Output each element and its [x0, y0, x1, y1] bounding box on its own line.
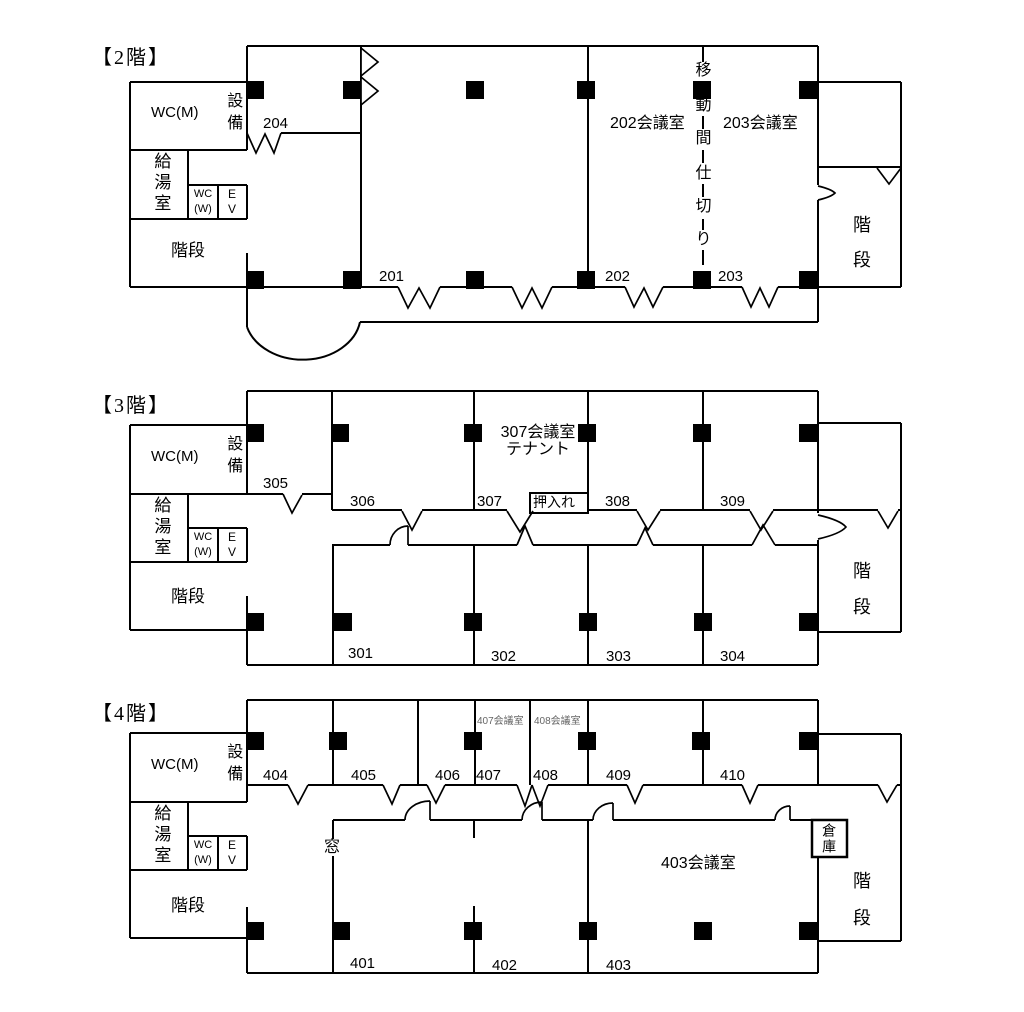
floor2-annex-stairs-char2: 段	[852, 251, 872, 270]
ev-line2: V	[217, 202, 247, 217]
floor4-columns	[246, 732, 817, 940]
window-label: 窓	[323, 839, 341, 856]
wc-w-line1: WC	[188, 838, 218, 853]
room-label-meeting403: 403会議室	[661, 855, 736, 872]
floor4-equipment-label: 設備	[224, 743, 241, 787]
ev-line2: V	[217, 545, 247, 560]
partition-char-6: り	[695, 231, 712, 248]
partition-char-1: 移	[695, 62, 712, 79]
door-label-304: 304	[720, 649, 745, 665]
floor4-annex-stairs-char1: 階	[852, 872, 872, 891]
room-label-meeting408: 408会議室	[534, 717, 581, 728]
room-label-meeting407: 407会議室	[477, 717, 524, 728]
ev-line2: V	[217, 853, 247, 868]
floor2-annex-stairs-char1: 階	[852, 216, 872, 235]
floor4-walls	[130, 700, 901, 973]
floor4-plan	[130, 700, 901, 973]
floor3-annex-stairs-char1: 階	[852, 562, 872, 581]
floor3-wc-m-label: WC(M)	[151, 449, 198, 465]
door-label-306: 306	[350, 494, 375, 510]
partition-char-3: 間	[695, 130, 712, 147]
floor2-ev-label: EV	[217, 187, 247, 217]
meeting307-line1: 307会議室	[494, 424, 582, 441]
door-label-309: 309	[720, 494, 745, 510]
floor2-kitchen-label: 給湯室	[151, 152, 169, 215]
floor4-ev-label: EV	[217, 838, 247, 868]
floor3-door-symbols	[283, 494, 898, 545]
door-label-408: 408	[533, 768, 558, 784]
wc-w-line1: WC	[188, 187, 218, 202]
door-label-409: 409	[606, 768, 631, 784]
meeting307-line2: テナント	[494, 441, 582, 458]
door-label-410: 410	[720, 768, 745, 784]
floor4-annex-stairs-char2: 段	[852, 909, 872, 928]
floor2-double-door-icon	[361, 48, 378, 105]
wc-w-line2: (W)	[188, 853, 218, 868]
door-label-303: 303	[606, 649, 631, 665]
storage-label: 倉庫	[821, 823, 836, 855]
ev-line1: E	[217, 530, 247, 545]
door-label-302: 302	[491, 649, 516, 665]
floor2-columns	[246, 81, 817, 289]
door-label-201: 201	[379, 269, 404, 285]
door-label-203: 203	[718, 269, 743, 285]
floor-plan-document: 【2階】 WC(M) 設備 給湯室 WC(W) EV 階段 204 201 20…	[0, 0, 1024, 1012]
partition-char-5: 切	[695, 198, 712, 215]
floor3-equipment-label: 設備	[224, 435, 241, 479]
floor2-stairs-label: 階段	[171, 242, 205, 260]
floor4-title: 【4階】	[92, 704, 170, 726]
room-label-meeting203: 203会議室	[723, 115, 798, 132]
floor3-kitchen-label: 給湯室	[151, 496, 169, 559]
wc-w-line1: WC	[188, 530, 218, 545]
floor4-kitchen-label: 給湯室	[151, 804, 169, 867]
wc-w-line2: (W)	[188, 202, 218, 217]
floor4-wc-w-label: WC(W)	[188, 838, 218, 868]
floor3-annex-stairs-char2: 段	[852, 598, 872, 617]
door-label-407: 407	[476, 768, 501, 784]
wc-w-line2: (W)	[188, 545, 218, 560]
floor3-stairs-label: 階段	[171, 588, 205, 606]
door-label-305: 305	[263, 476, 288, 492]
floor2-equipment-label: 設備	[224, 92, 241, 136]
floor2-wc-w-label: WC(W)	[188, 187, 218, 217]
partition-char-4: 仕	[695, 165, 712, 182]
door-label-403: 403	[606, 958, 631, 974]
room-label-meeting307: 307会議室テナント	[494, 424, 582, 459]
door-label-204: 204	[263, 116, 288, 132]
floor3-title: 【3階】	[92, 396, 170, 418]
floor4-stairs-label: 階段	[171, 897, 205, 915]
door-label-308: 308	[605, 494, 630, 510]
floor2-wc-m-label: WC(M)	[151, 105, 198, 121]
closet-label: 押入れ	[533, 495, 575, 510]
door-label-401: 401	[350, 956, 375, 972]
floor4-door-symbols	[288, 785, 897, 820]
door-label-405: 405	[351, 768, 376, 784]
door-label-307: 307	[477, 494, 502, 510]
ev-line1: E	[217, 187, 247, 202]
door-label-301: 301	[348, 646, 373, 662]
floor3-wc-w-label: WC(W)	[188, 530, 218, 560]
door-label-404: 404	[263, 768, 288, 784]
ev-line1: E	[217, 838, 247, 853]
door-label-406: 406	[435, 768, 460, 784]
door-label-402: 402	[492, 958, 517, 974]
floor4-wc-m-label: WC(M)	[151, 757, 198, 773]
room-label-meeting202: 202会議室	[610, 115, 685, 132]
door-label-202: 202	[605, 269, 630, 285]
floor2-title: 【2階】	[92, 48, 170, 70]
floor3-ev-label: EV	[217, 530, 247, 560]
partition-char-2: 動	[695, 97, 712, 114]
